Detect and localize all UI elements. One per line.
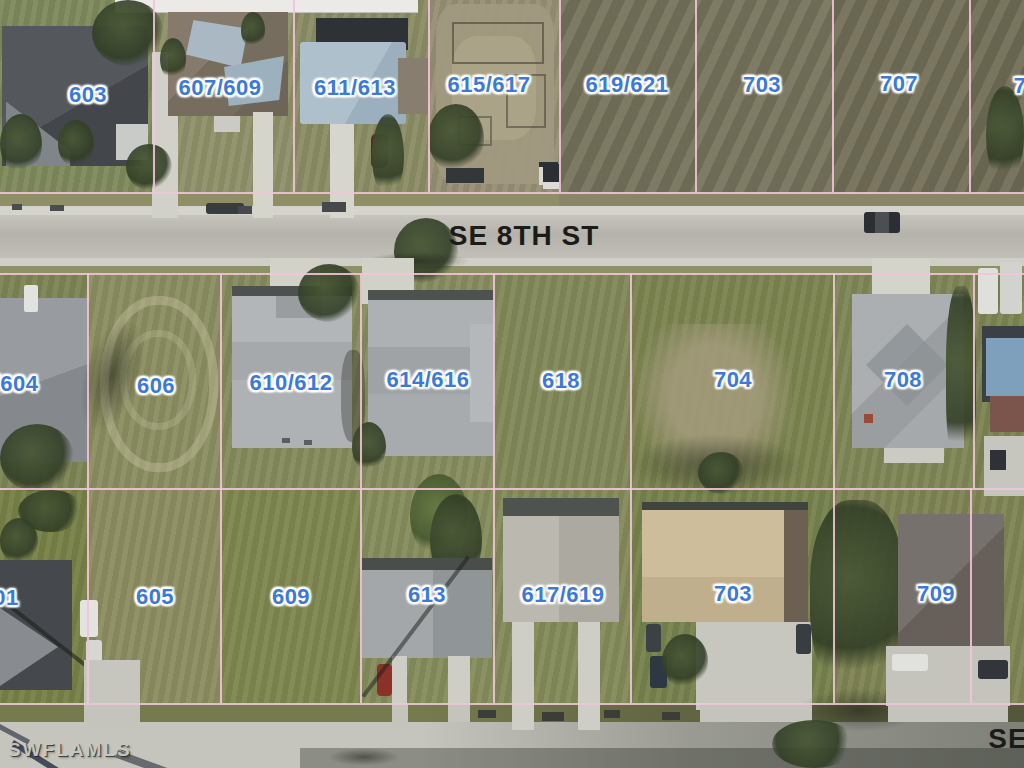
parcel-label-607-609: 607/609 (178, 75, 261, 101)
parcel-label-618: 618 (542, 368, 580, 394)
parcel-label-703-south: 703 (714, 581, 752, 607)
aerial-parcel-map: 603607/609611/613615/617619/6217037077/6… (0, 0, 1024, 768)
parcel-label-7xx-partial: 7 (1014, 73, 1024, 99)
parcel-label-617-619: 617/619 (521, 582, 604, 608)
parcel-label-613: 613 (408, 582, 446, 608)
parcel-label-614-616: 614/616 (386, 367, 469, 393)
parcel-label-707: 707 (880, 71, 918, 97)
mls-watermark: SWFLAMLS (8, 739, 132, 761)
parcel-label-610-612: 610/612 (249, 370, 332, 396)
street-label-se-partial: SE (988, 723, 1024, 755)
parcel-label-619-621: 619/621 (585, 72, 668, 98)
parcel-label-703-north: 703 (743, 72, 781, 98)
parcel-label-605: 605 (136, 584, 174, 610)
parcel-label-709: 709 (917, 581, 955, 607)
parcel-label-603: 603 (69, 82, 107, 108)
parcel-label-611-613: 611/613 (314, 75, 396, 101)
parcel-label-609: 609 (272, 584, 310, 610)
parcel-label-615-617: 615/617 (447, 72, 530, 98)
parcel-label-606: 606 (137, 373, 175, 399)
parcel-label-604-partial: /604 (0, 371, 38, 397)
parcel-label-601-partial: 01 (0, 585, 19, 611)
parcel-label-708: 708 (884, 367, 922, 393)
labels-layer: 603607/609611/613615/617619/6217037077/6… (0, 0, 1024, 768)
street-label-se-8th-st: SE 8TH ST (449, 220, 600, 252)
parcel-label-704: 704 (714, 367, 752, 393)
